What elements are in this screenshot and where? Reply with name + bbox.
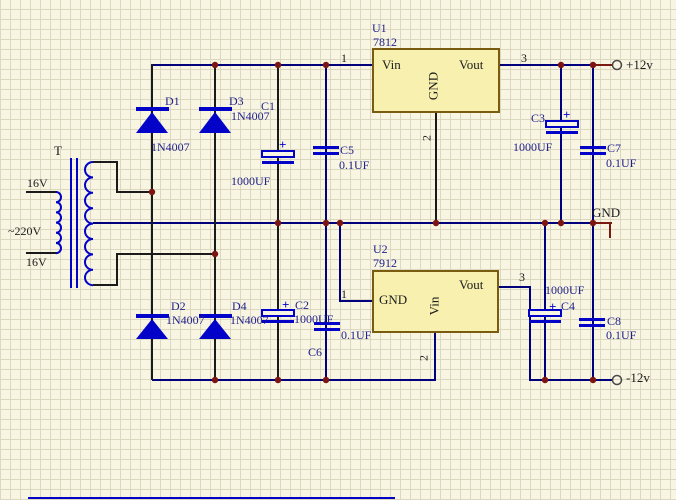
schematic-canvas: T 16V ~220V 16V D1 1N4007 D3 1N4007 D2 1…: [0, 0, 676, 500]
cap-plate-bottom: [529, 320, 561, 323]
junction-dot: [275, 220, 281, 226]
u1-pin-vin-label: Vin: [382, 58, 401, 71]
transformer-secondary-top-label: 16V: [27, 177, 48, 190]
cap-plate-bottom: [579, 324, 605, 327]
cap-c7-ref: C7: [607, 142, 621, 155]
cap-c1-plus-sign: +: [279, 138, 286, 151]
terminal-neg-12v[interactable]: [613, 376, 622, 385]
cap-c6-value: 0.1UF: [341, 329, 371, 342]
junction-dot: [323, 377, 329, 383]
cap-c2-value: 1000UF: [294, 313, 333, 326]
junction-dot: [590, 220, 596, 226]
junction-dot: [212, 251, 218, 257]
diode-d1[interactable]: [136, 107, 169, 133]
regulator-u1-part: 7812: [373, 36, 397, 49]
junction-dot: [275, 377, 281, 383]
wire-secondary-bottom-tap: [93, 254, 215, 285]
wire-secondary-top-tap: [93, 162, 152, 192]
diode-d1-ref: D1: [165, 95, 180, 108]
junction-dot: [433, 220, 439, 226]
u1-pin3-number: 3: [521, 52, 527, 65]
diode-d3[interactable]: [199, 107, 232, 133]
output-pos-label: +12v: [626, 58, 653, 71]
diode-cathode-bar: [136, 314, 169, 318]
cap-c5-ref: C5: [340, 144, 354, 157]
cap-c5-value: 0.1UF: [339, 159, 369, 172]
cap-plate-top: [580, 146, 606, 149]
regulator-u2-ref: U2: [373, 243, 388, 256]
transformer-ref: T: [54, 144, 62, 157]
transformer-primary-coil: [56, 192, 61, 253]
cap-c3-plus-sign: +: [563, 108, 570, 121]
transformer-primary-label: ~220V: [8, 225, 41, 238]
u2-pin1-number: 1: [341, 288, 347, 301]
cap-c6-ref: C6: [308, 346, 322, 359]
junction-dot: [323, 220, 329, 226]
diode-triangle: [136, 112, 168, 133]
cap-c7-value: 0.1UF: [606, 157, 636, 170]
junction-dot: [149, 189, 155, 195]
u1-pin1-number: 1: [341, 52, 347, 65]
junction-dot: [212, 62, 218, 68]
cap-plate-bottom: [546, 131, 578, 134]
schematic-drawing: [0, 0, 676, 500]
cap-c2-ref: C2: [295, 299, 309, 312]
cap-c3-ref: C3: [531, 112, 545, 125]
diode-d1-part: 1N4007: [151, 141, 190, 154]
transformer-secondary-bottom-label: 16V: [26, 256, 47, 269]
cap-plate-top: [313, 146, 339, 149]
u1-pin-gnd-label: GND: [427, 72, 440, 100]
cap-c3-value: 1000UF: [513, 141, 552, 154]
cap-plate-top: [546, 121, 578, 127]
transformer-secondary-coil: [85, 162, 93, 285]
diode-d2-part: 1N4007: [166, 314, 205, 327]
u1-pin2-number: 2: [421, 135, 434, 141]
diode-triangle: [199, 112, 231, 133]
junction-dot: [323, 62, 329, 68]
cap-c1-ref: C1: [261, 100, 275, 113]
transformer-symbol[interactable]: [56, 158, 93, 288]
cap-plate-top: [262, 151, 294, 157]
cap-c3[interactable]: [546, 121, 578, 134]
diode-triangle: [136, 319, 168, 339]
cap-plate-bottom: [313, 152, 339, 155]
diode-d4-ref: D4: [232, 300, 247, 313]
cap-plate-bottom: [262, 161, 294, 164]
diode-d2[interactable]: [136, 314, 169, 339]
cap-plate-bottom: [314, 328, 340, 331]
u1-pin-vout-label: Vout: [459, 58, 483, 71]
diode-d3-ref: D3: [229, 95, 244, 108]
junction-dot: [542, 377, 548, 383]
junction-dot: [558, 220, 564, 226]
u2-pin3-number: 3: [519, 271, 525, 284]
junction-dot: [337, 220, 343, 226]
output-gnd-label: GND: [592, 206, 620, 219]
junction-dot: [590, 62, 596, 68]
junction-dot: [212, 377, 218, 383]
cap-plate-top: [579, 318, 605, 321]
regulator-u1-ref: U1: [372, 22, 387, 35]
junction-dot: [275, 62, 281, 68]
output-neg-label: -12v: [626, 371, 650, 384]
cap-c1-value: 1000UF: [231, 175, 270, 188]
junction-dot: [590, 377, 596, 383]
u2-pin-vin-label: Vin: [428, 297, 441, 316]
u2-pin-gnd-label: GND: [379, 293, 407, 306]
junction-dot: [542, 220, 548, 226]
junction-dot: [558, 62, 564, 68]
cap-c2-plus-sign: +: [282, 298, 289, 311]
diode-d4-part: 1N4007: [230, 314, 269, 327]
terminal-pos-12v[interactable]: [613, 61, 622, 70]
cap-plate-bottom: [580, 152, 606, 155]
u2-pin2-number: 2: [418, 355, 431, 361]
cap-c4-ref: C4: [561, 300, 575, 313]
cap-c4-value: 1000UF: [545, 284, 584, 297]
cap-c8-value: 0.1UF: [606, 329, 636, 342]
cap-c8-ref: C8: [607, 315, 621, 328]
diode-d2-ref: D2: [171, 300, 186, 313]
diode-cathode-bar: [199, 107, 232, 111]
cap-c4-plus-sign: +: [549, 300, 556, 313]
cap-c1[interactable]: [262, 151, 294, 164]
regulator-u2-part: 7912: [373, 257, 397, 270]
u2-pin-vout-label: Vout: [459, 278, 483, 291]
